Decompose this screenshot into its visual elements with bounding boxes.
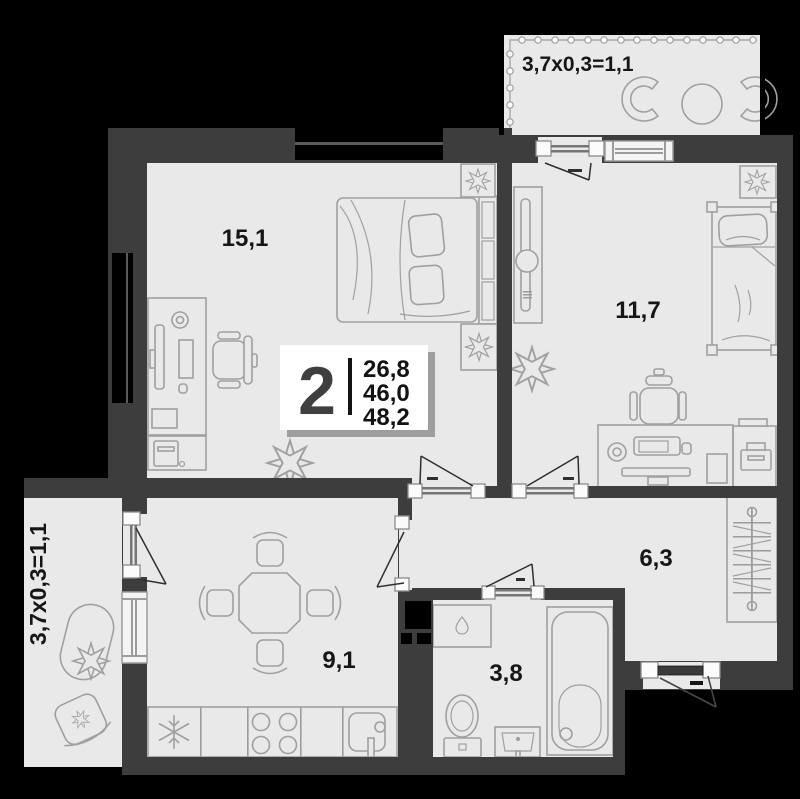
wall-segment — [122, 757, 625, 775]
info-usable-area: 46,0 — [363, 380, 410, 407]
nightstand-icon — [461, 164, 495, 198]
wall-segment — [18, 478, 412, 498]
shaft-box — [417, 633, 431, 644]
apartment-info-box: 2 26,8 46,0 48,2 — [280, 345, 435, 437]
room-area-label-hallway: 6,3 — [639, 545, 672, 572]
bathroom-sink-icon — [495, 727, 540, 757]
info-living-area: 26,8 — [363, 356, 410, 383]
wall-segment — [497, 163, 512, 498]
hall-wardrobe-icon — [727, 495, 777, 622]
window-kitchen-balcony — [122, 592, 147, 663]
bedroom-desk-icon — [598, 425, 733, 487]
double-bed-icon — [337, 196, 497, 324]
floor-plan-image: 15,1 11,7 9,1 6,3 3,8 3,7x0,3=1,1 3,7x0,… — [0, 0, 800, 799]
info-rooms-count: 2 — [298, 353, 336, 429]
wardrobe-mirror-icon — [514, 187, 542, 323]
room-area-label-kitchen: 9,1 — [322, 647, 355, 674]
living-desk-icon — [148, 298, 206, 435]
kitchen-counter — [148, 707, 397, 757]
balcony-dimension-label-top: 3,7x0,3=1,1 — [522, 53, 634, 76]
nightstand-icon — [740, 165, 776, 199]
window-bedroom-balcony — [605, 141, 673, 161]
wall-segment — [777, 135, 793, 690]
balcony-border — [18, 478, 24, 774]
info-divider — [348, 358, 352, 415]
balcony-border — [499, 30, 504, 135]
room-area-label-bedroom: 11,7 — [615, 297, 660, 324]
floor-balcony-top — [501, 32, 762, 135]
room-area-label-living: 15,1 — [222, 225, 269, 252]
wall-segment — [613, 595, 625, 775]
room-area-label-bathroom: 3,8 — [489, 660, 522, 687]
bathtub-icon — [547, 607, 613, 755]
window-living-top — [295, 128, 443, 160]
dining-table-icon — [239, 573, 300, 633]
balcony-dimension-label-left: 3,7x0,3=1,1 — [25, 523, 51, 645]
nightstand-icon — [460, 324, 498, 370]
info-total-area: 48,2 — [363, 404, 410, 431]
shaft-box — [401, 633, 412, 644]
window-living-left — [112, 253, 133, 403]
floor-plan-page: 15,1 11,7 9,1 6,3 3,8 3,7x0,3=1,1 3,7x0,… — [0, 0, 800, 799]
balcony-border — [760, 30, 765, 135]
living-printer-icon — [148, 436, 206, 470]
balcony-border — [499, 30, 765, 35]
washing-machine-icon — [433, 605, 491, 647]
balcony-border — [18, 767, 122, 773]
shaft-box — [405, 601, 431, 629]
